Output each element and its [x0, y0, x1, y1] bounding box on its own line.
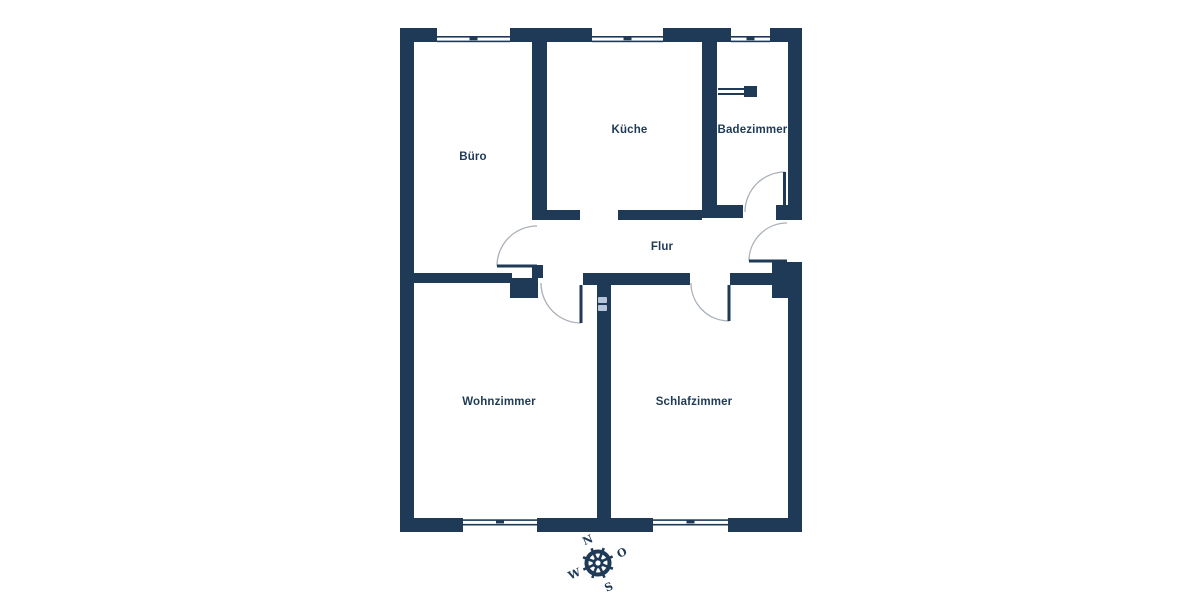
door-leaf: [497, 265, 537, 268]
wall-kueche-flur-left: [532, 210, 580, 220]
wall-right-upper: [788, 28, 802, 220]
compass-hub: [593, 558, 604, 569]
window-buero: [437, 28, 510, 42]
room-label-wohnzimmer: Wohnzimmer: [462, 396, 536, 408]
wall-kueche-flur-right: [618, 210, 702, 220]
door-leaf: [783, 172, 786, 213]
door-swing-arc: [541, 283, 581, 323]
entrance-jamb-top: [776, 205, 802, 220]
compass-spokes: [577, 542, 619, 584]
room-label-kueche: Küche: [612, 124, 648, 136]
door-buero: [497, 226, 537, 268]
wall-flur-bottom-right: [730, 273, 788, 285]
door-entrance: [749, 223, 787, 263]
compass-ring: [583, 548, 613, 578]
wall-bottom: [400, 518, 802, 532]
compass-letter-north: N: [581, 532, 595, 548]
door-wohnzimmer: [541, 283, 583, 323]
window-kueche: [592, 28, 663, 42]
window-schlafzimmer: [653, 518, 728, 532]
room-label-flur: Flur: [651, 241, 674, 253]
compass-letter-east: O: [615, 545, 629, 561]
radiator-icon: [718, 86, 757, 97]
wall-pillar-block: [510, 278, 538, 298]
window-badezimmer: [731, 28, 770, 42]
room-label-badezimmer: Badezimmer: [718, 124, 788, 136]
wall-wohn-schlaf: [597, 275, 611, 518]
door-schlafzimmer: [691, 283, 731, 321]
floorplan-canvas: Büro Küche Badezimmer Flur Wohnzimmer Sc…: [0, 0, 1200, 600]
wall-kueche-bad: [702, 42, 717, 218]
wall-right-lower: [788, 262, 802, 532]
door-swing-arc: [497, 226, 537, 266]
wall-bad-flur: [702, 205, 743, 218]
compass-rose-icon: N O S W: [555, 522, 640, 600]
walls: [400, 28, 802, 532]
door-swing-arc: [749, 223, 787, 261]
compass-letter-south: S: [603, 580, 616, 595]
door-leaf: [728, 285, 731, 321]
floorplan-drawing: Büro Küche Badezimmer Flur Wohnzimmer Sc…: [0, 0, 1200, 600]
room-label-schlafzimmer: Schlafzimmer: [656, 396, 733, 408]
compass-letter-west: W: [565, 565, 583, 583]
door-swing-arc: [691, 283, 729, 321]
door-leaf: [580, 285, 583, 323]
wall-buero-kueche: [532, 42, 547, 220]
room-label-buero: Büro: [459, 151, 486, 163]
wall-buero-bottom: [400, 273, 512, 283]
window-wohnzimmer: [463, 518, 537, 532]
door-leaf: [749, 260, 787, 263]
